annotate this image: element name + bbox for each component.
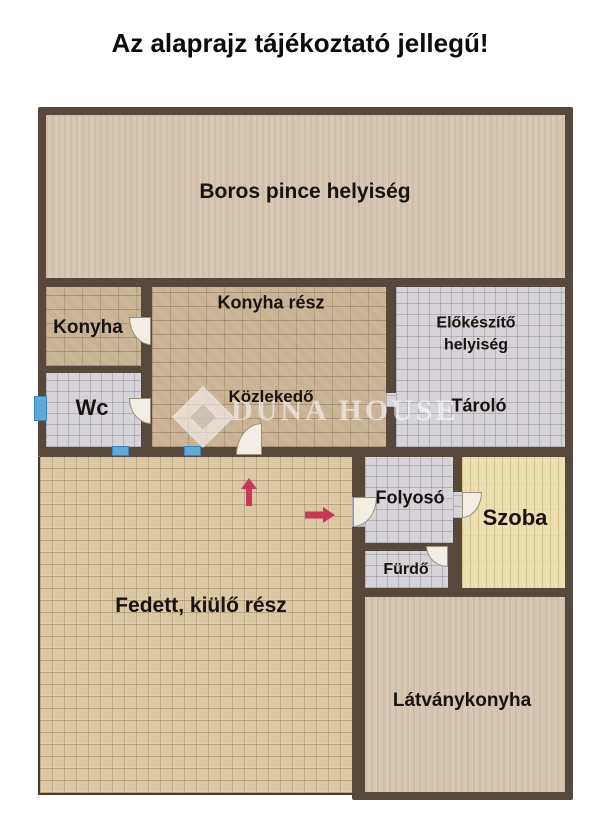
- page-title: Az alaprajz tájékoztató jellegű!: [0, 28, 600, 59]
- label-furdo: Fürdő: [383, 561, 428, 579]
- label-szoba: Szoba: [483, 505, 548, 531]
- floor-plan-page: Az alaprajz tájékoztató jellegű! DUNA HO…: [0, 0, 600, 830]
- label-wc: Wc: [76, 395, 109, 421]
- arrow-up-icon: [240, 478, 258, 506]
- label-tarolo: Tároló: [451, 396, 506, 417]
- arrow-right-icon: [305, 506, 335, 524]
- label-folyoso: Folyosó: [375, 488, 444, 509]
- room-elokeszito-tarolo: [396, 287, 565, 447]
- window-bottom-kozlekedo: [184, 446, 201, 456]
- window-bottom-wc: [112, 446, 129, 456]
- door-opening-folyoso-szoba: [453, 492, 462, 518]
- label-konyha-resz: Konyha rész: [217, 293, 324, 314]
- window-left-wc: [34, 396, 47, 421]
- label-kozlekedo: Közlekedő: [228, 387, 313, 407]
- label-boros-pince: Boros pince helyiség: [199, 180, 410, 204]
- door-opening-kozlekedo-tarolo: [386, 393, 396, 407]
- label-elokeszito: Előkészítő helyiség: [411, 312, 541, 355]
- label-latvanykonyha: Látványkonyha: [393, 690, 531, 712]
- label-konyha: Konyha: [53, 317, 123, 339]
- label-fedett: Fedett, kiülő rész: [115, 594, 287, 618]
